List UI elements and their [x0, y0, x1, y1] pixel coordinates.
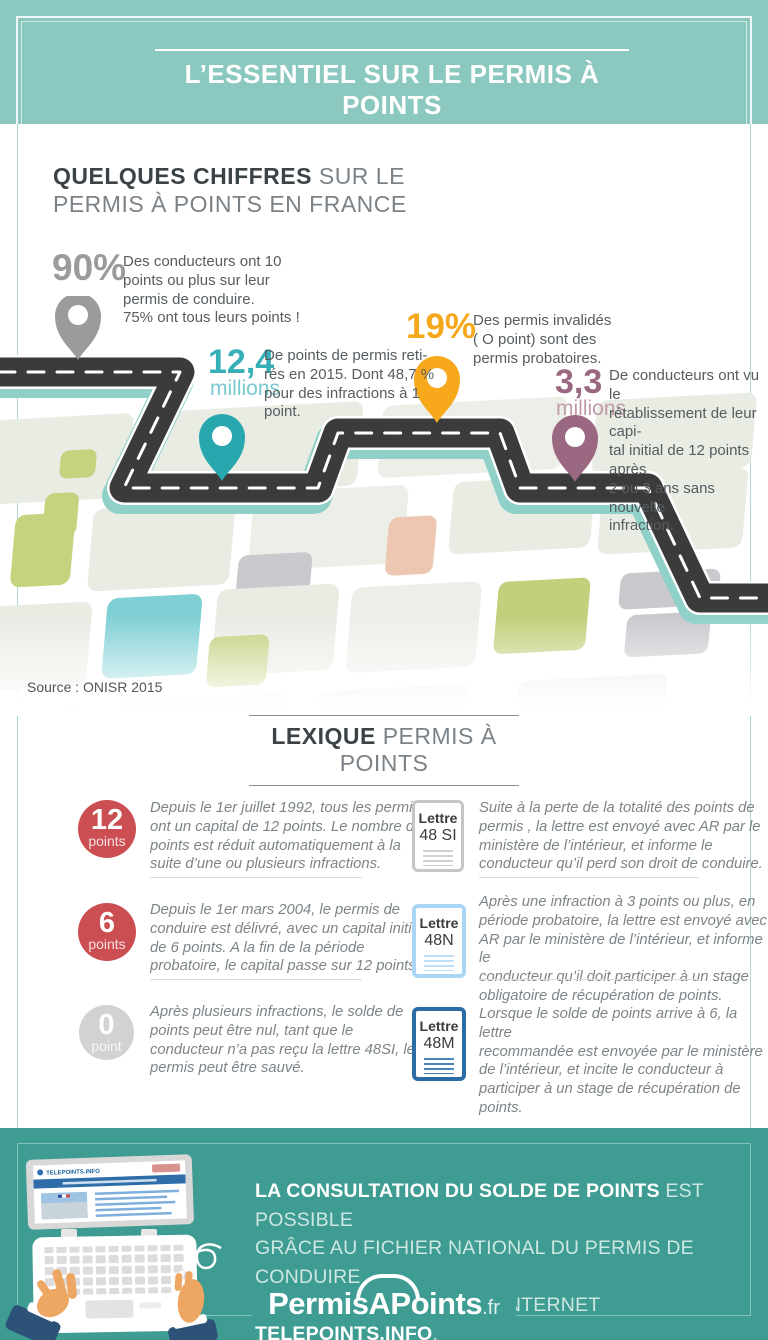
- lexique-text-48n: Après une infraction à 3 points ou plus,…: [479, 893, 768, 1006]
- lexique-text-6: Depuis le 1er mars 2004, le permis de co…: [150, 901, 423, 976]
- logo-suffix: .fr: [482, 1297, 500, 1319]
- letter-48m-lines: [424, 1058, 454, 1074]
- badge-6-number: 6: [78, 908, 136, 938]
- badge-0-point: 0 point: [79, 1005, 134, 1060]
- stat-3-3-desc: De conducteurs ont vu le rétablissement …: [609, 367, 768, 536]
- laptop-hinge: [61, 1229, 77, 1238]
- heading-bold: QUELQUES CHIFFRES: [53, 163, 312, 189]
- letter-48n-code: 48N: [416, 932, 462, 950]
- screen-button: [152, 1164, 180, 1173]
- letter-48n-lines: [424, 955, 454, 971]
- stat-19-desc: Des permis invalidés ( O point) sont des…: [473, 312, 653, 368]
- laptop-screen: TELEPOINTS.INFO: [26, 1154, 194, 1230]
- footer-line3-end: .: [432, 1323, 438, 1340]
- lexique-text-48m: Lorsque le solde de points arrive à 6, l…: [479, 1005, 768, 1118]
- letter-48si-code: 48 SI: [415, 827, 461, 845]
- section-heading-chiffres: QUELQUES CHIFFRES SUR LE PERMIS À POINTS…: [53, 162, 407, 218]
- divider: [479, 877, 699, 878]
- source-note: Source : ONISR 2015: [27, 679, 162, 695]
- lexique-text-48si: Suite à la perte de la totalité des poin…: [479, 799, 763, 874]
- letter-48si-icon: Lettre 48 SI: [412, 800, 464, 872]
- letter-48m-word: Lettre: [416, 1018, 462, 1034]
- logo-part1: Permis: [268, 1286, 368, 1321]
- letter-48m-icon: Lettre 48M: [412, 1007, 466, 1081]
- letter-48si-word: Lettre: [415, 810, 461, 826]
- footer-line1-bold: LA CONSULTATION DU SOLDE DE POINTS: [255, 1180, 660, 1202]
- poster-title-block: L’ESSENTIEL SUR LE PERMIS À POINTS: [155, 49, 629, 132]
- divider: [150, 979, 362, 980]
- lexique-bold: LEXIQUE: [271, 723, 375, 749]
- letter-48si-lines: [423, 850, 453, 866]
- poster-title: L’ESSENTIEL SUR LE PERMIS À POINTS: [185, 59, 600, 120]
- map-pin-gray-90: [55, 296, 101, 360]
- section-heading-lexique: LEXIQUE PERMIS À POINTS: [249, 715, 519, 786]
- letter-48n-word: Lettre: [416, 915, 462, 931]
- badge-6-points: 6 points: [78, 903, 136, 961]
- footer-line3-site: TELEPOINTS.INFO: [255, 1323, 432, 1340]
- badge-6-label: points: [78, 938, 136, 951]
- heading-line2: PERMIS À POINTS EN FRANCE: [53, 190, 407, 218]
- brand-logo: PermisAPoints.fr: [252, 1286, 516, 1322]
- letter-48n-icon: Lettre 48N: [412, 904, 466, 978]
- heading-light: SUR LE: [312, 163, 405, 189]
- divider: [150, 877, 362, 878]
- infographic-poster: L’ESSENTIEL SUR LE PERMIS À POINTS: [0, 0, 768, 1340]
- lexique-text-0: Après plusieurs infractions, le solde de…: [150, 1003, 415, 1078]
- lexique-text-12: Depuis le 1er juillet 1992, tous les per…: [150, 799, 422, 874]
- stat-19-value: 19%: [406, 307, 476, 347]
- stat-12-4-desc: De points de permis reti- rés en 2015. D…: [264, 347, 459, 422]
- stat-90-value: 90%: [52, 247, 126, 289]
- divider: [479, 979, 699, 980]
- footer-line2: GRÂCE AU FICHIER NATIONAL DU PERMIS DE C…: [255, 1234, 735, 1291]
- badge-0-label: point: [79, 1040, 134, 1053]
- stat-90-desc: Des conducteurs ont 10 points ou plus su…: [123, 253, 338, 328]
- badge-12-number: 12: [78, 805, 136, 835]
- letter-48m-code: 48M: [416, 1035, 462, 1053]
- badge-12-points: 12 points: [78, 800, 136, 858]
- badge-12-label: points: [78, 835, 136, 848]
- brand-logo-row: PermisAPoints.fr: [0, 1286, 768, 1322]
- map-fade-overlay: [0, 606, 768, 716]
- badge-0-number: 0: [79, 1010, 134, 1040]
